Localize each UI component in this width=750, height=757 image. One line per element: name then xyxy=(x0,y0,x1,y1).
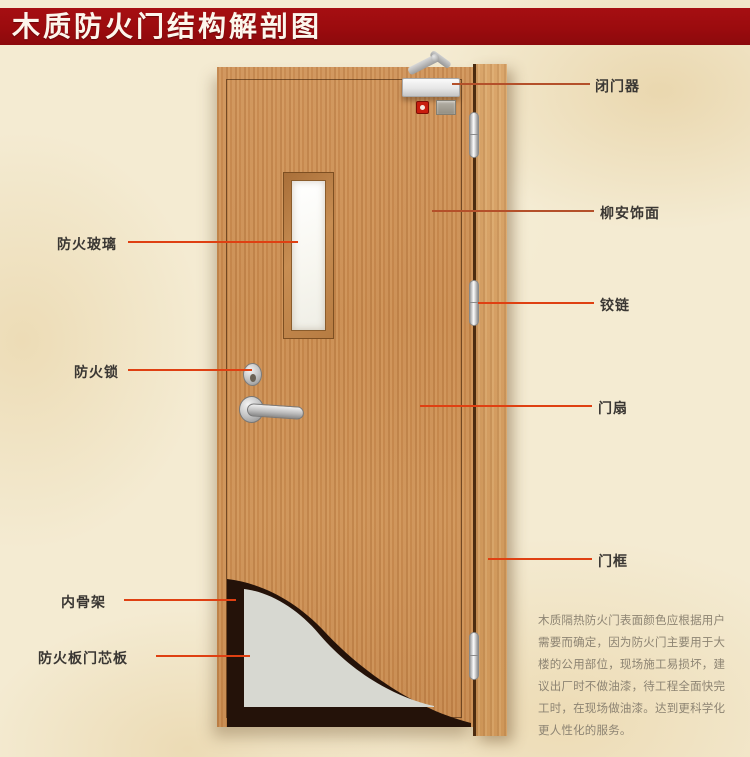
label-hinge: 铰链 xyxy=(600,295,630,315)
label-fire-board-core: 防火板门芯板 xyxy=(38,648,128,668)
leader-fire-glass xyxy=(128,241,298,243)
lock-cylinder xyxy=(243,363,262,386)
fire-glass-pane xyxy=(291,180,326,331)
infographic-page: 木质防火门结构解剖图 防火玻璃 防火锁 内骨架 防火板门芯板 xyxy=(0,0,750,757)
door-core-cutaway xyxy=(218,576,473,727)
leader-lauan-veneer xyxy=(432,210,594,212)
leader-hinge xyxy=(478,302,594,304)
hinge-top xyxy=(469,112,479,158)
door-closer-body xyxy=(402,78,460,97)
fire-glass-window xyxy=(283,172,334,339)
description-line: 更人性化的服务。 xyxy=(538,720,728,742)
keyhole xyxy=(250,374,256,382)
door-closer-pivot xyxy=(431,54,439,62)
label-fire-glass: 防火玻璃 xyxy=(57,234,117,254)
label-fire-lock: 防火锁 xyxy=(74,362,119,382)
label-lauan-veneer: 柳安饰面 xyxy=(600,203,660,223)
leader-fire-lock xyxy=(128,369,252,371)
leader-door-frame xyxy=(488,558,592,560)
label-door-closer: 闭门器 xyxy=(595,76,640,96)
leader-inner-skeleton xyxy=(124,599,236,601)
label-inner-skeleton: 内骨架 xyxy=(61,592,106,612)
leader-door-leaf xyxy=(420,405,592,407)
page-title: 木质防火门结构解剖图 xyxy=(0,8,322,45)
description-line: 楼的公用部位，现场施工易损坏，建 xyxy=(538,654,728,676)
title-banner: 木质防火门结构解剖图 xyxy=(0,8,750,45)
description-line: 议出厂时不做油漆，待工程全面快完 xyxy=(538,676,728,698)
leader-door-closer xyxy=(452,83,590,85)
label-door-frame: 门框 xyxy=(598,551,628,571)
description-paragraph: 木质隔热防火门表面颜色应根据用户 需要而确定，因为防火门主要用于大 楼的公用部位… xyxy=(538,610,728,742)
alarm-indicator-dot xyxy=(420,105,425,110)
description-line: 工时，在现场做油漆。达到更科学化 xyxy=(538,698,728,720)
alarm-indicator xyxy=(416,101,429,114)
hinge-bottom xyxy=(469,632,479,680)
description-line: 需要而确定，因为防火门主要用于大 xyxy=(538,632,728,654)
label-door-leaf: 门扇 xyxy=(598,398,628,418)
mount-plate xyxy=(436,100,456,115)
leader-fire-board-core xyxy=(156,655,250,657)
description-line: 木质隔热防火门表面颜色应根据用户 xyxy=(538,610,728,632)
